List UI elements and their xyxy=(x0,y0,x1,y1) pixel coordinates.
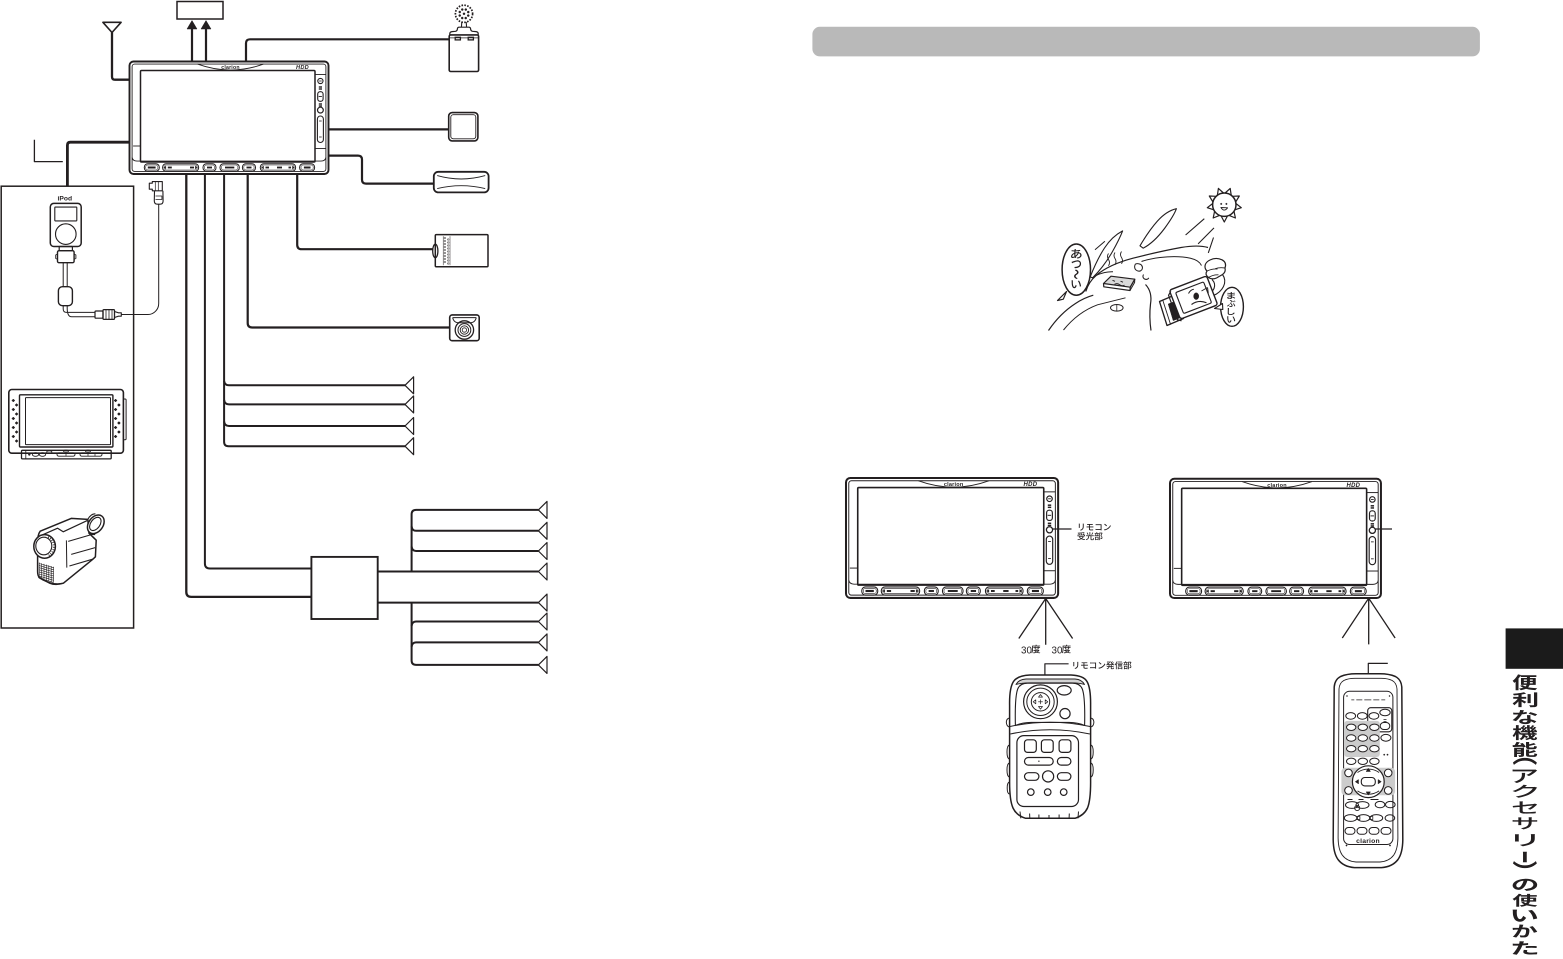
svg-text:clarion: clarion xyxy=(221,65,239,71)
svg-text:clarion: clarion xyxy=(1267,483,1287,489)
svg-text:clarion: clarion xyxy=(1356,838,1380,845)
svg-text:30: 30 xyxy=(1052,645,1063,656)
svg-text:iPod: iPod xyxy=(58,195,73,202)
svg-text:30: 30 xyxy=(1021,645,1032,656)
svg-text:HDD: HDD xyxy=(1023,482,1037,488)
svg-text:clarion: clarion xyxy=(944,482,964,488)
svg-text:HDD: HDD xyxy=(296,65,309,71)
svg-text:HDD: HDD xyxy=(1346,483,1360,489)
